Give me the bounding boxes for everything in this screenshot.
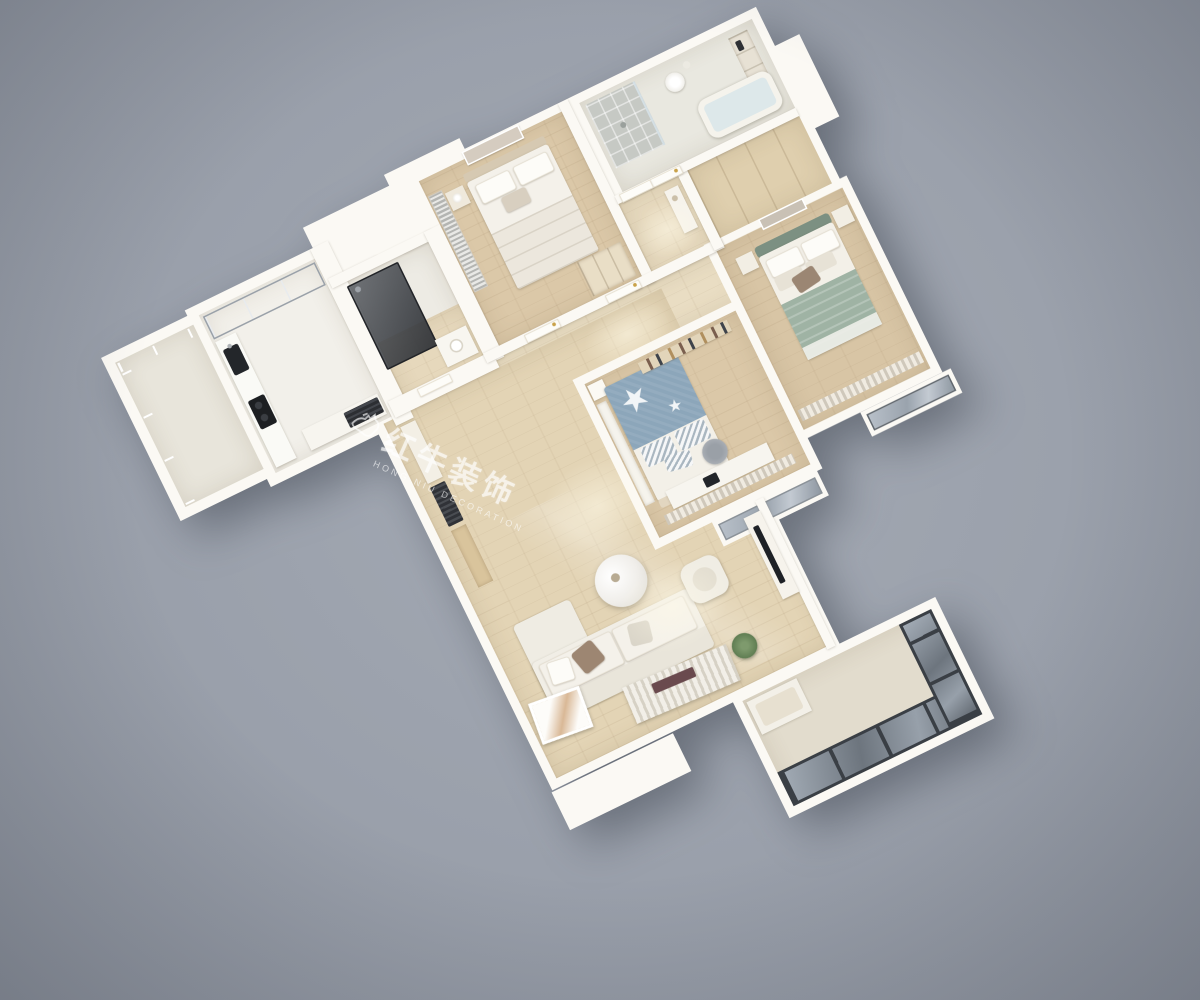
floorplan: ★ ★ bbox=[89, 4, 1092, 1000]
star-small: ★ bbox=[666, 396, 684, 415]
render-stage: ★ ★ bbox=[0, 0, 1200, 1000]
